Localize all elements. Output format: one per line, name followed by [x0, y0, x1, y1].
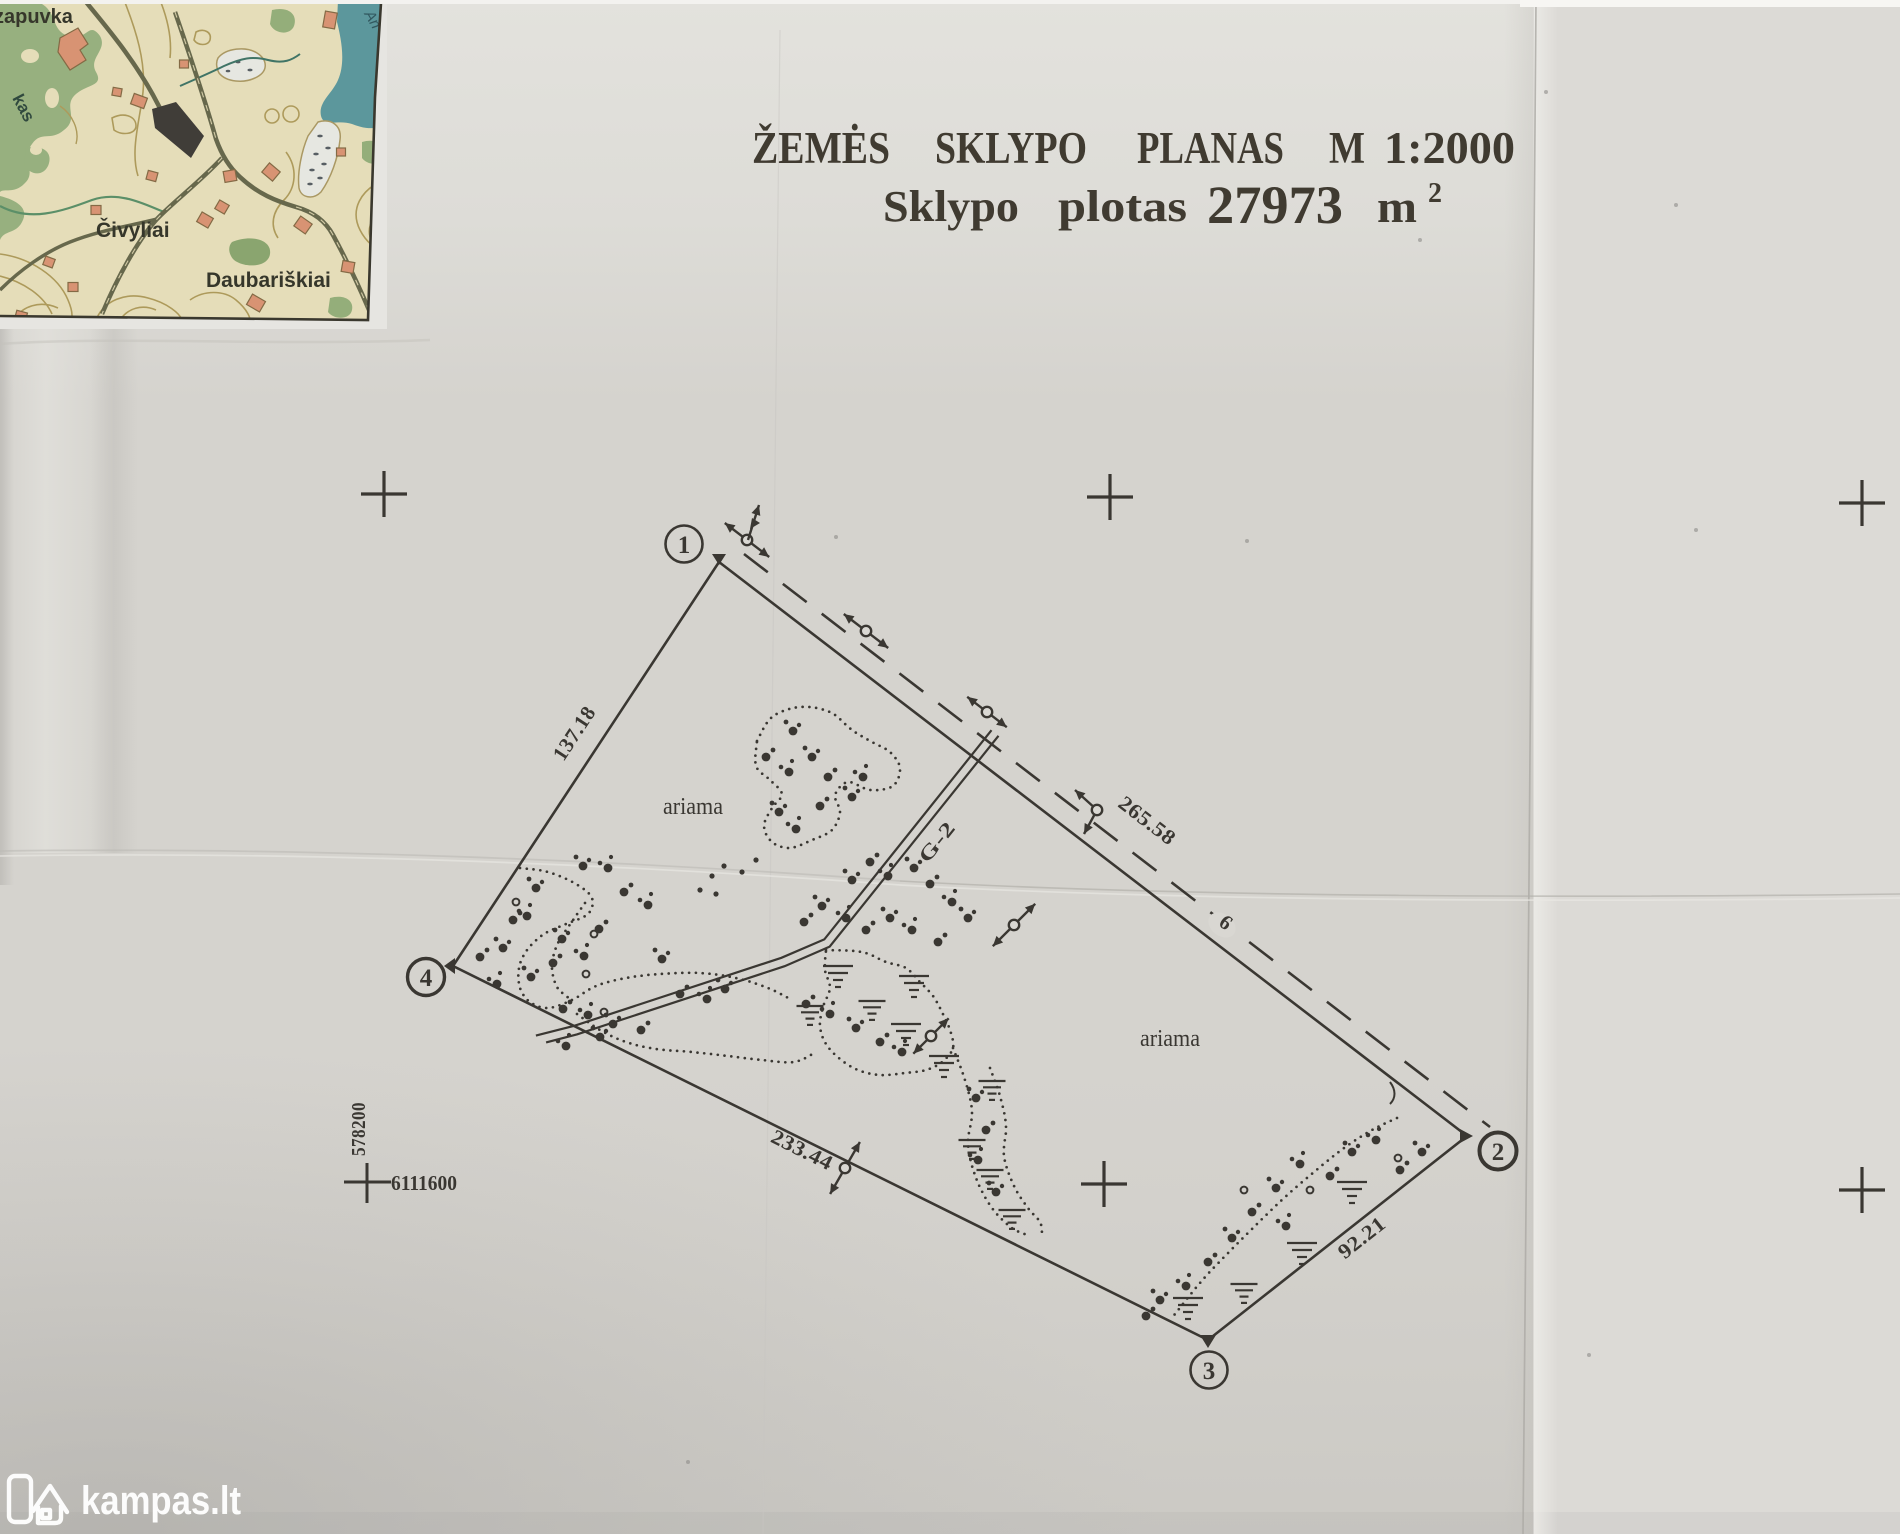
svg-text:ŽEMĖS: ŽEMĖS [752, 123, 890, 173]
svg-text:Sklypo: Sklypo [883, 182, 1019, 231]
svg-text:3: 3 [1203, 1358, 1216, 1385]
svg-text:6111600: 6111600 [391, 1171, 457, 1195]
svg-text:plotas: plotas [1058, 182, 1187, 231]
svg-text:1: 1 [678, 532, 691, 559]
svg-text:SKLYPO: SKLYPO [935, 123, 1087, 173]
svg-text:kampas.lt: kampas.lt [81, 1479, 241, 1523]
svg-text:27973: 27973 [1207, 175, 1343, 235]
svg-text:4: 4 [420, 965, 433, 992]
svg-text:ariama: ariama [663, 794, 723, 820]
svg-text:m: m [1377, 181, 1417, 232]
svg-text:578200: 578200 [348, 1102, 370, 1156]
svg-text:1:2000: 1:2000 [1384, 123, 1515, 173]
svg-text:2: 2 [1492, 1139, 1505, 1166]
svg-text:M: M [1329, 123, 1365, 173]
svg-text:PLANAS: PLANAS [1137, 123, 1284, 173]
svg-text:2: 2 [1428, 178, 1442, 209]
svg-text:ariama: ariama [1140, 1026, 1200, 1052]
